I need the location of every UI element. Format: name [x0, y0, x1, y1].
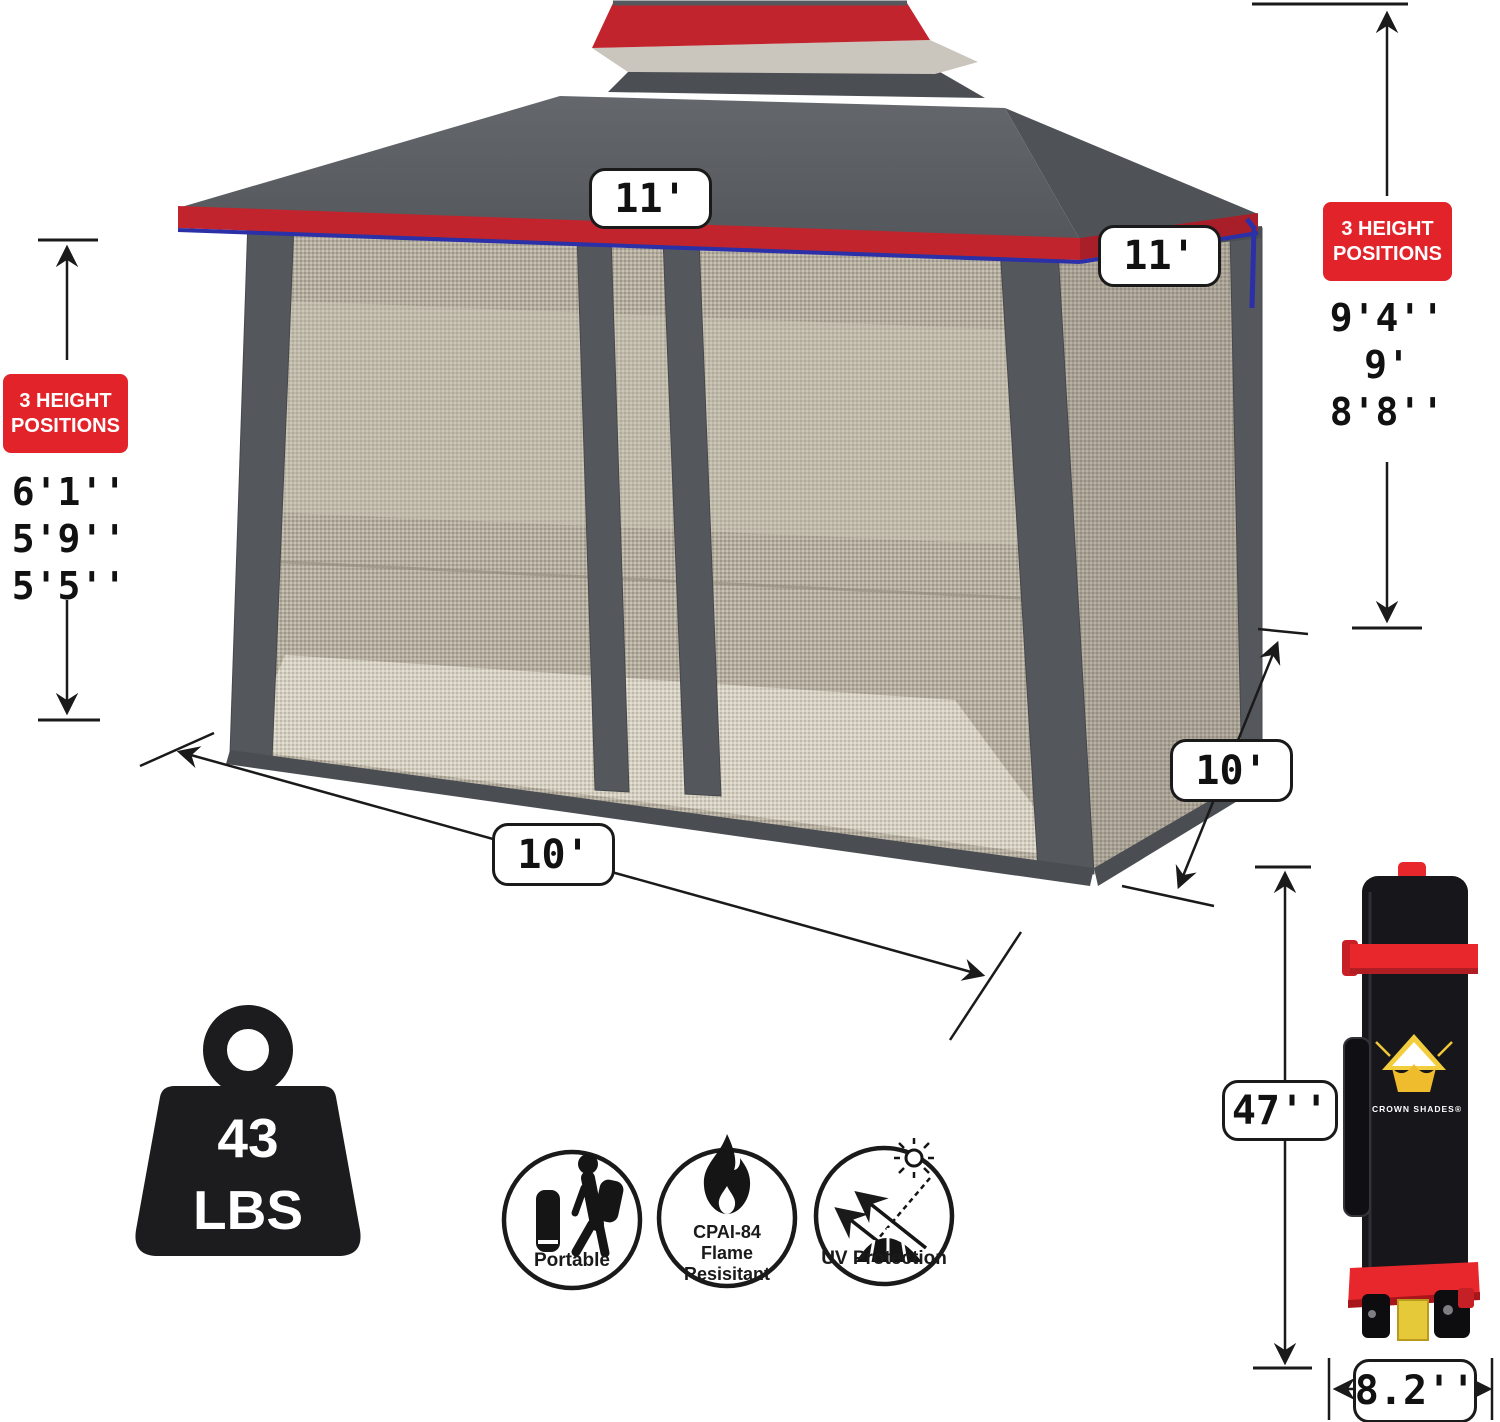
- height-badge-left-line2: POSITIONS: [11, 414, 120, 438]
- height-value: 9': [1364, 341, 1410, 388]
- height-value: 5'9'': [12, 515, 126, 562]
- height-badge-left: 3 HEIGHT POSITIONS: [3, 374, 128, 453]
- height-badge-left-line1: 3 HEIGHT: [19, 389, 111, 413]
- front-base-tick-left: [140, 733, 214, 766]
- side-base-tick-top: [1258, 629, 1308, 634]
- feature-flame-line1: CPAI-84: [662, 1222, 792, 1243]
- feature-label-uv: UV Protection: [804, 1248, 964, 1270]
- dim-label-bag-width: 8.2'': [1353, 1359, 1477, 1422]
- height-values-right: 9'4'' 9' 8'8'': [1320, 294, 1454, 435]
- weight-handle-ring: [215, 1017, 281, 1083]
- bag-yellow-tag: [1398, 1300, 1428, 1340]
- gazebo-backwall-glow: [268, 300, 1020, 545]
- front-base-tick-right: [950, 932, 1021, 1040]
- bag-foot-left: [1362, 1294, 1390, 1338]
- height-value: 9'4'': [1330, 294, 1444, 341]
- height-badge-right-line1: 3 HEIGHT: [1341, 217, 1433, 241]
- feature-flame-line3: Resisitant: [662, 1264, 792, 1285]
- roof-vent: [608, 70, 985, 98]
- weight-unit: LBS: [178, 1178, 318, 1242]
- height-badge-right-line2: POSITIONS: [1333, 242, 1442, 266]
- dim-label-top-side: 11': [1098, 225, 1221, 287]
- dim-label-bottom-side: 10': [1170, 739, 1293, 802]
- weight-value: 43: [178, 1106, 318, 1170]
- bag-brand-text: CROWN SHADES®: [1372, 1104, 1456, 1114]
- bag-foot-bolt-right: [1443, 1305, 1453, 1315]
- product-diagram: 11' 11' 10' 10' 47'' 8.2'' 3 HEIGHT POSI…: [0, 0, 1500, 1422]
- height-values-left: 6'1'' 5'9'' 5'5'': [4, 468, 134, 609]
- gazebo-illustration: [178, 3, 1262, 886]
- feature-label-flame: CPAI-84 Flame Resisitant: [662, 1222, 792, 1285]
- dim-label-bottom-front: 10': [492, 823, 615, 886]
- side-base-tick-bottom: [1122, 886, 1214, 906]
- height-value: 8'8'': [1330, 388, 1444, 435]
- bag-strap-top-shadow: [1350, 968, 1478, 974]
- bag-foot-red-clip: [1458, 1288, 1474, 1308]
- bag-side-pocket: [1344, 1038, 1370, 1216]
- carry-bag: [1342, 862, 1480, 1340]
- dim-label-bag-height: 47'': [1222, 1080, 1338, 1141]
- feature-label-portable: Portable: [512, 1250, 632, 1272]
- bag-foot-bolt-left: [1368, 1310, 1376, 1318]
- feature-flame-line2: Flame: [662, 1243, 792, 1264]
- height-value: 5'5'': [12, 562, 126, 609]
- height-badge-right: 3 HEIGHT POSITIONS: [1323, 202, 1452, 281]
- dim-label-top-front: 11': [589, 168, 712, 229]
- height-value: 6'1'': [12, 468, 126, 515]
